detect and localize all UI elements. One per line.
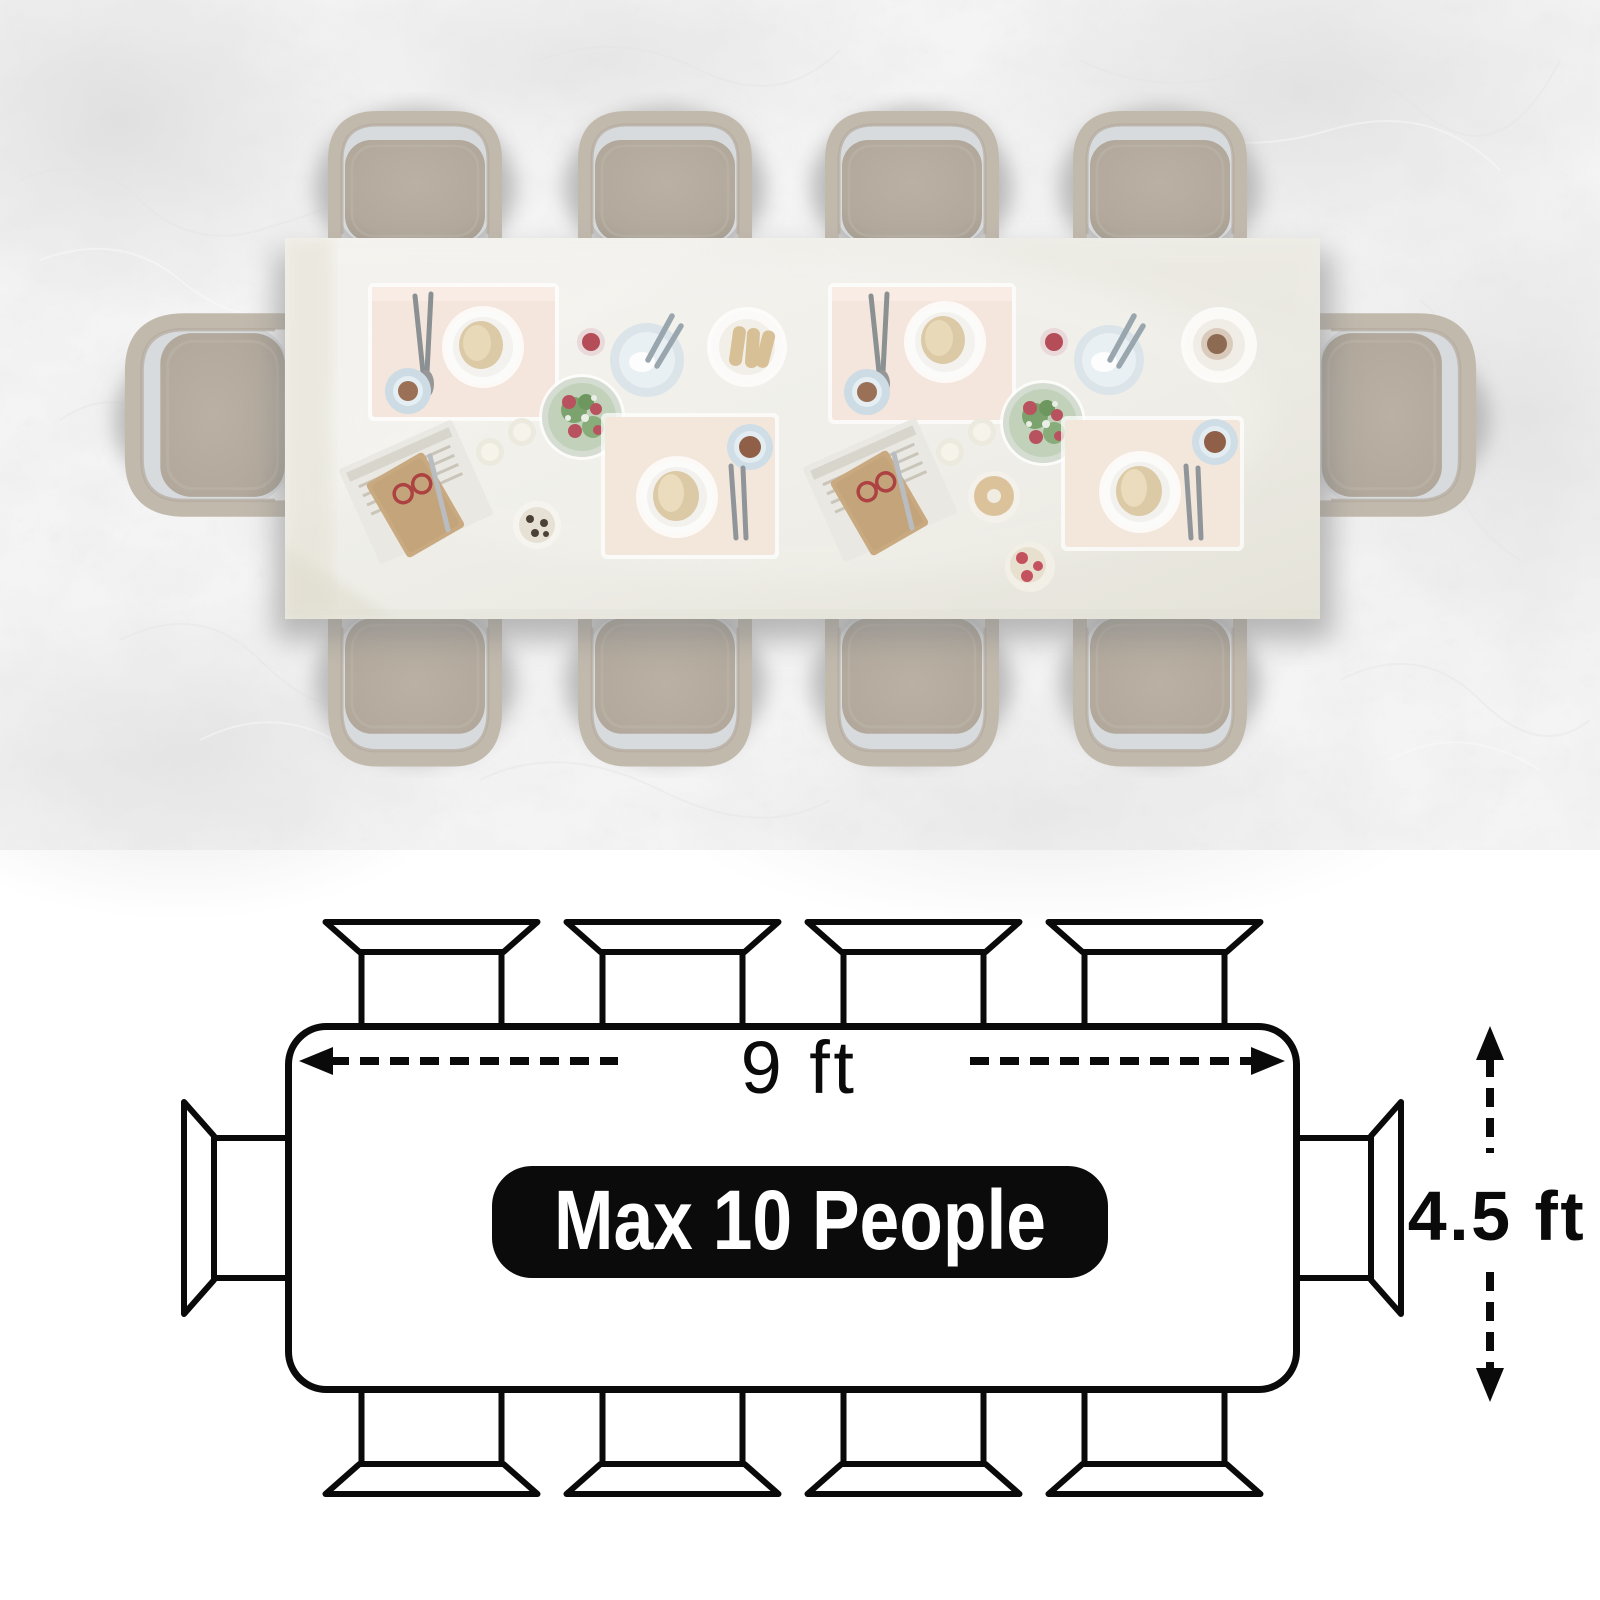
svg-text:9 ft: 9 ft xyxy=(741,1026,858,1109)
svg-text:4.5 ft: 4.5 ft xyxy=(1408,1177,1586,1255)
svg-text:Max 10 People: Max 10 People xyxy=(554,1173,1046,1267)
